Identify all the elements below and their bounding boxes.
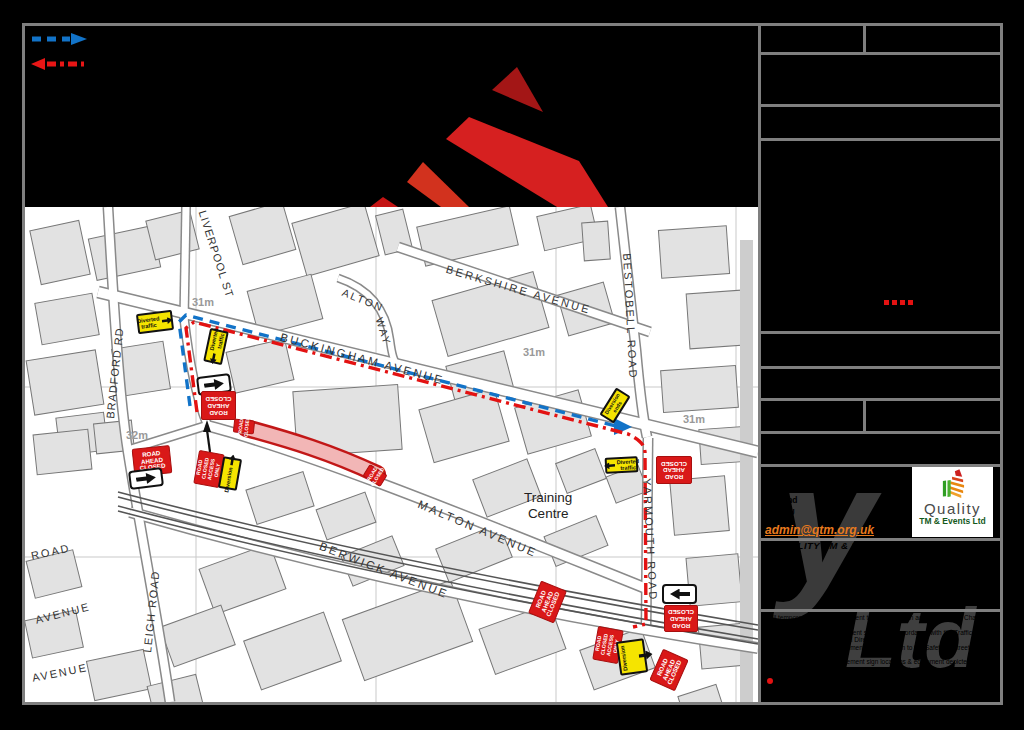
left-arrow-icon	[604, 462, 615, 470]
sign-text: Diverted traffic	[137, 315, 161, 330]
note-line: All temporary traffic management sign lo…	[769, 658, 997, 665]
area-label-training-centre: Training Centre	[524, 490, 572, 521]
contact-email: admin@qtm.org.uk	[765, 520, 874, 538]
street-label-liverpool-st: LIVERPOOL ST	[197, 209, 237, 299]
note-line: All temporary signing equipment shall be…	[769, 629, 997, 636]
right-arrow-icon	[135, 472, 156, 485]
red-dashdot-arrow-left-icon	[30, 58, 86, 70]
street-label-bradford-rd: BRADFORD RD	[104, 327, 126, 419]
route-legend	[30, 32, 88, 82]
sign-road-ahead-closed: ROAD AHEAD CLOSED	[656, 456, 692, 484]
elevation-label: 31m	[192, 296, 214, 308]
sign-text: Diversion	[224, 467, 235, 493]
street-label-yarmouth-road: YARMOUTH ROAD	[641, 478, 659, 601]
right-arrow-icon	[638, 650, 653, 661]
email-link[interactable]: admin@qtm.org.uk	[765, 523, 874, 537]
sign-diversion: Diversion	[218, 456, 242, 491]
street-label-buckingham-avenue: BUCKINGHAM AVENUE	[279, 331, 446, 386]
sign-diversion-ends: Diversion ends	[599, 387, 630, 423]
note-line: of the Traffic Signs Manual	[769, 621, 997, 628]
street-label-road: ROAD	[30, 542, 71, 562]
sign-text: ROAD AHEAD CLOSED	[661, 460, 687, 481]
street-label-bestobell-road: BESTOBELL ROAD	[621, 253, 640, 380]
sign-text: ROAD AHEAD CLOSED	[206, 395, 232, 416]
elevation-label: 31m	[683, 413, 705, 425]
sign-text: ROAD AHEAD CLOSED	[654, 654, 684, 686]
sign-text: Diverted traffic	[209, 328, 226, 353]
legend-route-return	[30, 57, 88, 71]
sign-text: ROAD AHEAD CLOSED	[668, 608, 694, 629]
street-label-alton: ALTON	[341, 286, 386, 314]
sign-text: ROAD AHEAD CLOSED	[533, 586, 562, 618]
sign-road-ahead-closed: ROAD AHEAD CLOSED	[664, 605, 698, 632]
quality-logo-icon	[930, 469, 976, 501]
street-label-leigh-road: LEIGH ROAD	[141, 570, 162, 654]
quality-logo-subtitle: TM & Events Ltd	[919, 516, 986, 526]
street-label-berwick-avenue: BERWICK AVENUE	[318, 540, 451, 600]
sign-road-ahead-closed: ROAD AHEAD CLOSED	[649, 649, 688, 691]
elevation-label: 31m	[523, 346, 545, 358]
sign-diverted-traffic: Diverted traffic	[136, 310, 174, 334]
right-arrow-icon	[161, 316, 173, 324]
right-arrow-icon	[228, 454, 237, 466]
sign-text: Diversion	[619, 645, 628, 671]
title-block: y Ltd 20-22 Wenlock Road London England …	[761, 26, 1000, 702]
company-name-line: QUALITY TM & EVENTS	[775, 540, 893, 551]
sign-white-arrow	[662, 584, 697, 604]
street-label-avenue: AVENUE	[34, 600, 92, 625]
street-label-berkshire-avenue: BERKSHIRE AVENUE	[445, 263, 593, 316]
sign-text: ROAD CLOSED ACCESS ONLY	[196, 456, 223, 481]
company-address: 20-22 Wenlock Road London England N1 7GU	[764, 470, 847, 518]
sign-diverted-traffic: Diverted traffic	[605, 456, 639, 474]
note-line: All temporary traffic management to be i…	[769, 614, 997, 621]
notes-block: All temporary traffic management to be i…	[769, 614, 997, 673]
sign-text: Diverted traffic	[616, 458, 639, 472]
sign-text: Diversion ends	[604, 392, 626, 418]
note-line: All temporary traffic management shall c…	[769, 644, 997, 651]
legend-route-outbound	[30, 32, 88, 46]
sign-text: ROAD CLOSED	[237, 416, 250, 438]
sign-white-arrow	[128, 467, 164, 490]
street-label-avenue: AVENUE	[31, 661, 89, 684]
right-arrow-icon	[203, 378, 224, 391]
note-line: Signs Regulations & General Directions 2…	[769, 636, 997, 643]
left-arrow-icon	[670, 589, 690, 600]
blue-dashed-arrow-right-icon	[30, 33, 88, 45]
left-arrow-icon	[209, 352, 218, 364]
map-labels-and-signs: BRADFORD RDLIVERPOOL STALTONWAYBERKSHIRE…	[25, 207, 758, 702]
sign-road-ahead-closed: ROAD AHEAD CLOSED	[528, 581, 567, 624]
sign-text: ROAD CLOSED	[365, 464, 386, 488]
sign-road-closed: ROAD CLOSED	[362, 464, 387, 487]
note-line: Code of Practice 2013	[769, 651, 997, 658]
elevation-label: 32m	[126, 429, 148, 441]
note-line: indicative and may be adjusted to suit s…	[769, 666, 997, 673]
quality-logo-name: Quality	[924, 501, 981, 516]
company-logo-shapes	[25, 26, 758, 207]
sign-road-closed: ROAD CLOSED	[233, 418, 255, 434]
traffic-management-map: BRADFORD RDLIVERPOOL STALTONWAYBERKSHIRE…	[25, 207, 758, 702]
closure-legend-dashes	[884, 300, 913, 305]
street-label-malton-avenue: MALTON AVENUE	[416, 498, 539, 559]
sign-diversion-vertical: Diversion	[616, 638, 648, 676]
sign-diverted-traffic: Diverted traffic	[203, 328, 229, 365]
quality-tm-events-logo: Quality TM & Events Ltd	[912, 467, 993, 537]
sign-road-ahead-closed: ROAD AHEAD CLOSED	[201, 391, 236, 420]
street-label-way: WAY	[374, 316, 394, 347]
note-bullet-icon	[767, 678, 773, 684]
